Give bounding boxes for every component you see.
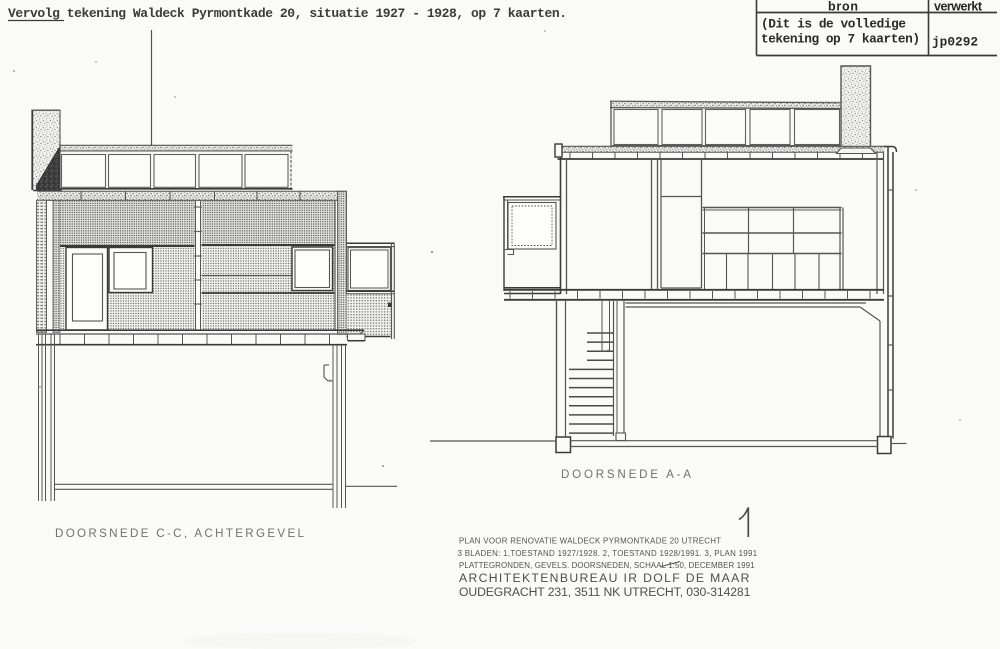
- svg-text:PLATTEGRONDEN, GEVELS. DOORSNE: PLATTEGRONDEN, GEVELS. DOORSNEDEN, SCHAA…: [459, 561, 755, 570]
- svg-text:bron: bron: [828, 0, 858, 14]
- svg-text:tekening op 7 kaarten): tekening op 7 kaarten): [761, 32, 920, 47]
- svg-text:(Dit is de volledige: (Dit is de volledige: [761, 17, 906, 32]
- svg-text:verwerkt: verwerkt: [934, 0, 983, 14]
- svg-text:DOORSNEDE C-C, ACHTERGEVEL: DOORSNEDE C-C, ACHTERGEVEL: [55, 527, 305, 540]
- svg-text:OUDEGRACHT 231, 3511 NK UTRECH: OUDEGRACHT 231, 3511 NK UTRECHT, 030-314…: [459, 585, 752, 599]
- svg-text:jp0292: jp0292: [932, 35, 978, 50]
- svg-text:PLAN VOOR RENOVATIE WALDECK PY: PLAN VOOR RENOVATIE WALDECK PYRMONTKADE …: [459, 537, 722, 546]
- svg-text:Vervolg tekening Waldeck Pyrmo: Vervolg tekening Waldeck Pyrmontkade 20,…: [8, 6, 567, 21]
- svg-text:3 BLADEN: 1,TOESTAND 1927/1928: 3 BLADEN: 1,TOESTAND 1927/1928. 2, TOEST…: [458, 549, 758, 558]
- svg-text:ARCHITEKTENBUREAU IR DOLF DE M: ARCHITEKTENBUREAU IR DOLF DE MAAR: [459, 571, 752, 585]
